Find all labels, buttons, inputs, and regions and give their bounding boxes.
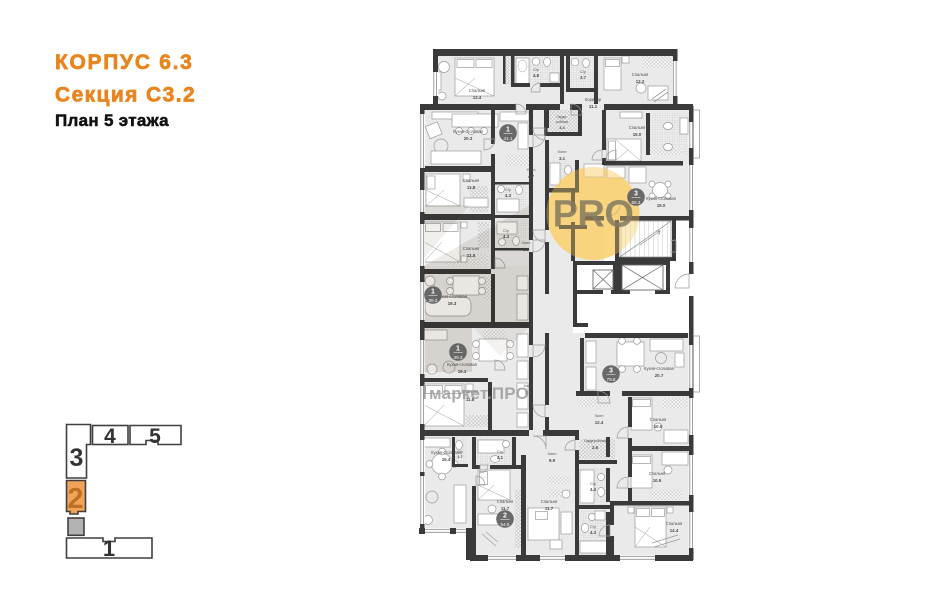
svg-text:План 5 этажа: План 5 этажа xyxy=(55,111,169,130)
svg-text:Холл: Холл xyxy=(527,168,536,172)
svg-text:Спальня: Спальня xyxy=(650,417,666,422)
svg-text:Коридор: Коридор xyxy=(585,97,602,102)
svg-text:Холл: Холл xyxy=(558,150,567,154)
svg-text:Спальня: Спальня xyxy=(632,72,648,77)
svg-text:3: 3 xyxy=(70,444,84,472)
svg-text:С/у: С/у xyxy=(580,70,586,74)
svg-text:41.1: 41.1 xyxy=(504,136,513,141)
svg-text:38.2: 38.2 xyxy=(429,298,438,303)
svg-text:Спальня: Спальня xyxy=(666,521,682,526)
svg-text:Спальня: Спальня xyxy=(649,471,665,476)
svg-text:4.3: 4.3 xyxy=(505,193,512,198)
svg-text:5: 5 xyxy=(149,425,161,448)
svg-text:13.4: 13.4 xyxy=(473,95,482,100)
svg-text:С/у: С/у xyxy=(497,450,503,454)
svg-text:20.7: 20.7 xyxy=(655,373,664,378)
svg-text:54.5: 54.5 xyxy=(501,522,510,527)
svg-text:12.2: 12.2 xyxy=(636,79,645,84)
svg-text:С/у: С/у xyxy=(590,525,596,529)
svg-text:11.7: 11.7 xyxy=(545,506,554,511)
svg-text:Спальня: Спальня xyxy=(497,499,513,504)
svg-text:робная: робная xyxy=(556,120,568,124)
svg-text:11.8: 11.8 xyxy=(467,185,476,190)
svg-text:39.3: 39.3 xyxy=(454,355,463,360)
svg-text:11.1: 11.1 xyxy=(589,104,598,109)
svg-text:3: 3 xyxy=(634,191,638,198)
svg-text:4.3: 4.3 xyxy=(590,530,597,535)
svg-text:10.5: 10.5 xyxy=(654,424,663,429)
svg-text:Холл: Холл xyxy=(595,414,604,418)
svg-text:С/у: С/у xyxy=(590,482,596,486)
svg-text:1: 1 xyxy=(506,127,510,134)
svg-text:Кухня-столовая: Кухня-столовая xyxy=(644,366,674,371)
svg-text:15.4: 15.4 xyxy=(442,457,451,462)
svg-text:1: 1 xyxy=(103,536,115,561)
svg-text:Спальня: Спальня xyxy=(469,88,485,93)
svg-text:PRO: PRO xyxy=(553,194,634,236)
svg-text:1: 1 xyxy=(456,346,460,353)
svg-text:19.0: 19.0 xyxy=(657,203,666,208)
svg-text:4.1: 4.1 xyxy=(497,455,504,460)
svg-text:3.1: 3.1 xyxy=(559,156,566,161)
svg-text:12.4: 12.4 xyxy=(595,420,604,425)
svg-text:65.3: 65.3 xyxy=(632,200,641,205)
svg-text:4: 4 xyxy=(104,425,116,448)
svg-text:Спальня: Спальня xyxy=(463,178,479,183)
svg-text:Спальня: Спальня xyxy=(541,499,557,504)
svg-text:2.6: 2.6 xyxy=(592,445,599,450)
svg-text:2: 2 xyxy=(503,513,507,520)
svg-text:КОРПУС 6.3: КОРПУС 6.3 xyxy=(55,51,194,74)
svg-text:С/у: С/у xyxy=(505,188,511,192)
svg-text:Кухня-столовая: Кухня-столовая xyxy=(453,129,483,134)
svg-text:3: 3 xyxy=(609,368,613,375)
svg-text:14.4: 14.4 xyxy=(670,528,679,533)
svg-text:4.4: 4.4 xyxy=(590,487,597,492)
svg-text:10.5: 10.5 xyxy=(653,478,662,483)
svg-text:9.9: 9.9 xyxy=(549,458,556,463)
svg-text:маркет.ПРО: маркет.ПРО xyxy=(429,384,529,403)
svg-text:2: 2 xyxy=(67,483,83,515)
svg-text:Кухня-столовая: Кухня-столовая xyxy=(646,196,676,201)
svg-text:79.8: 79.8 xyxy=(607,377,616,382)
svg-text:1.7: 1.7 xyxy=(457,454,463,459)
svg-text:1: 1 xyxy=(431,289,435,296)
svg-text:Гардеробная: Гардеробная xyxy=(584,439,606,443)
svg-text:3.7: 3.7 xyxy=(580,75,587,80)
svg-text:3.4: 3.4 xyxy=(559,125,565,130)
svg-text:Секция С3.2: Секция С3.2 xyxy=(55,84,196,107)
svg-text:Спальня: Спальня xyxy=(629,125,645,130)
svg-text:Холл: Холл xyxy=(548,452,557,456)
svg-text:4.7: 4.7 xyxy=(528,174,535,179)
svg-text:20.3: 20.3 xyxy=(464,136,473,141)
svg-text:Гарде-: Гарде- xyxy=(557,115,569,119)
svg-text:4.8: 4.8 xyxy=(533,73,540,78)
svg-text:С/у: С/у xyxy=(533,68,539,72)
svg-text:15.0: 15.0 xyxy=(633,132,642,137)
